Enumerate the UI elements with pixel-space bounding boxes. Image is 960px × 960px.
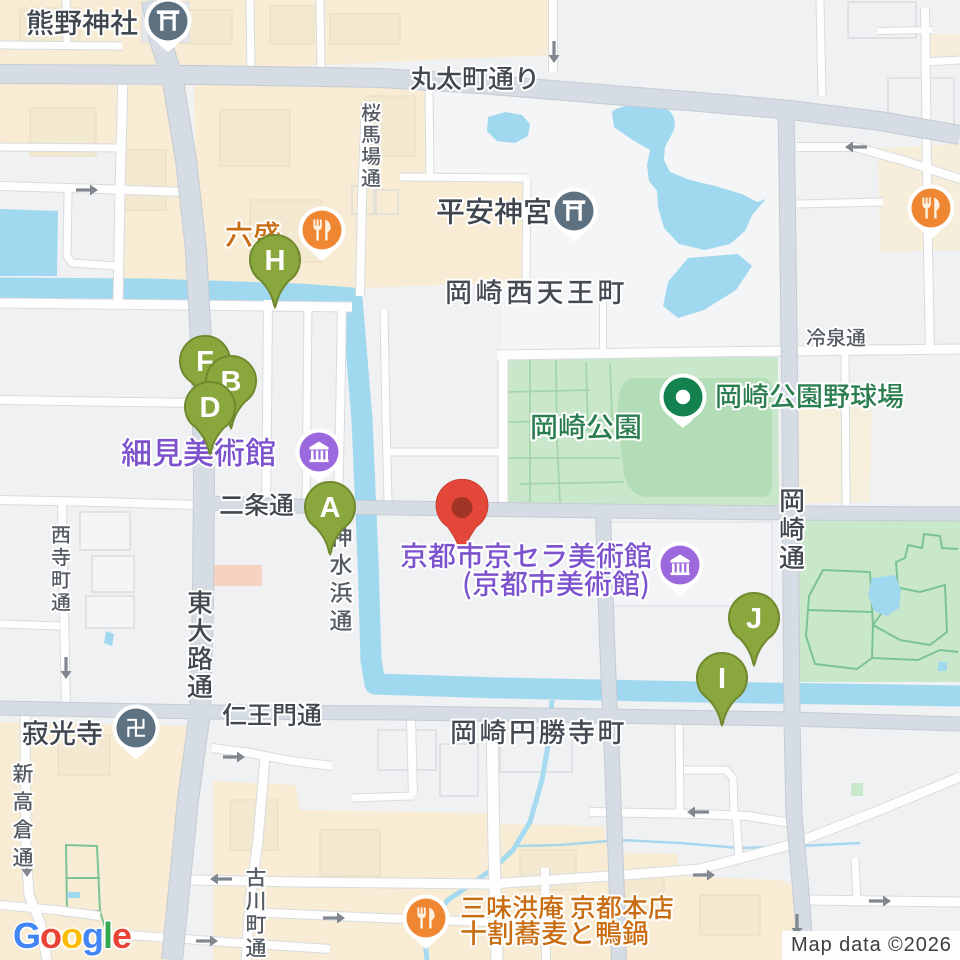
svg-text:G: G [13,915,41,956]
svg-text:A: A [320,492,341,524]
svg-text:Map data ©2026: Map data ©2026 [791,934,952,956]
svg-text:o: o [61,915,83,956]
svg-text:J: J [746,603,762,635]
svg-text:H: H [265,245,286,277]
svg-text:D: D [200,392,221,424]
svg-text:g: g [82,915,104,956]
svg-text:I: I [718,663,726,695]
svg-text:e: e [112,915,132,956]
svg-text:o: o [40,915,62,956]
